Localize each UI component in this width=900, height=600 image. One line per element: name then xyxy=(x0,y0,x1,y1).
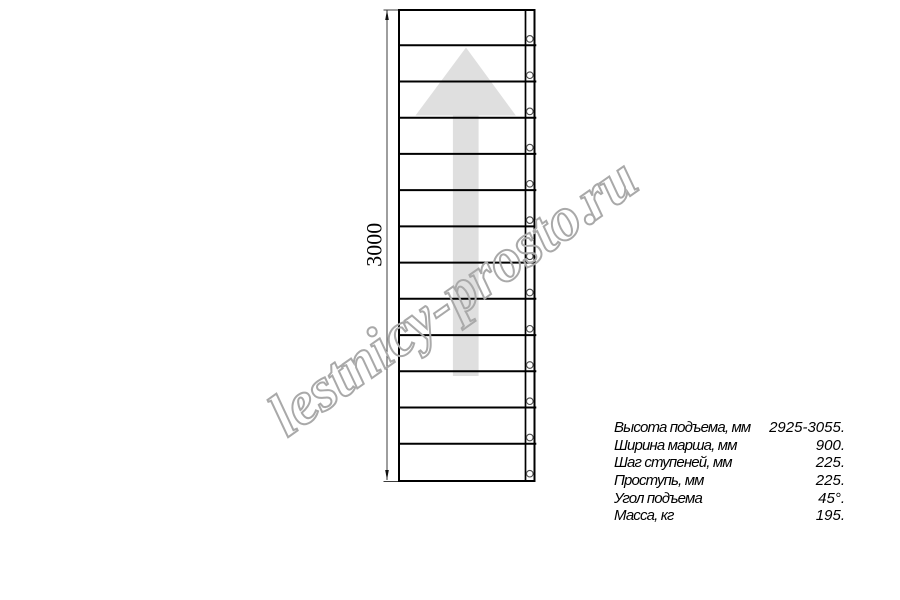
svg-text:3000: 3000 xyxy=(362,223,387,267)
